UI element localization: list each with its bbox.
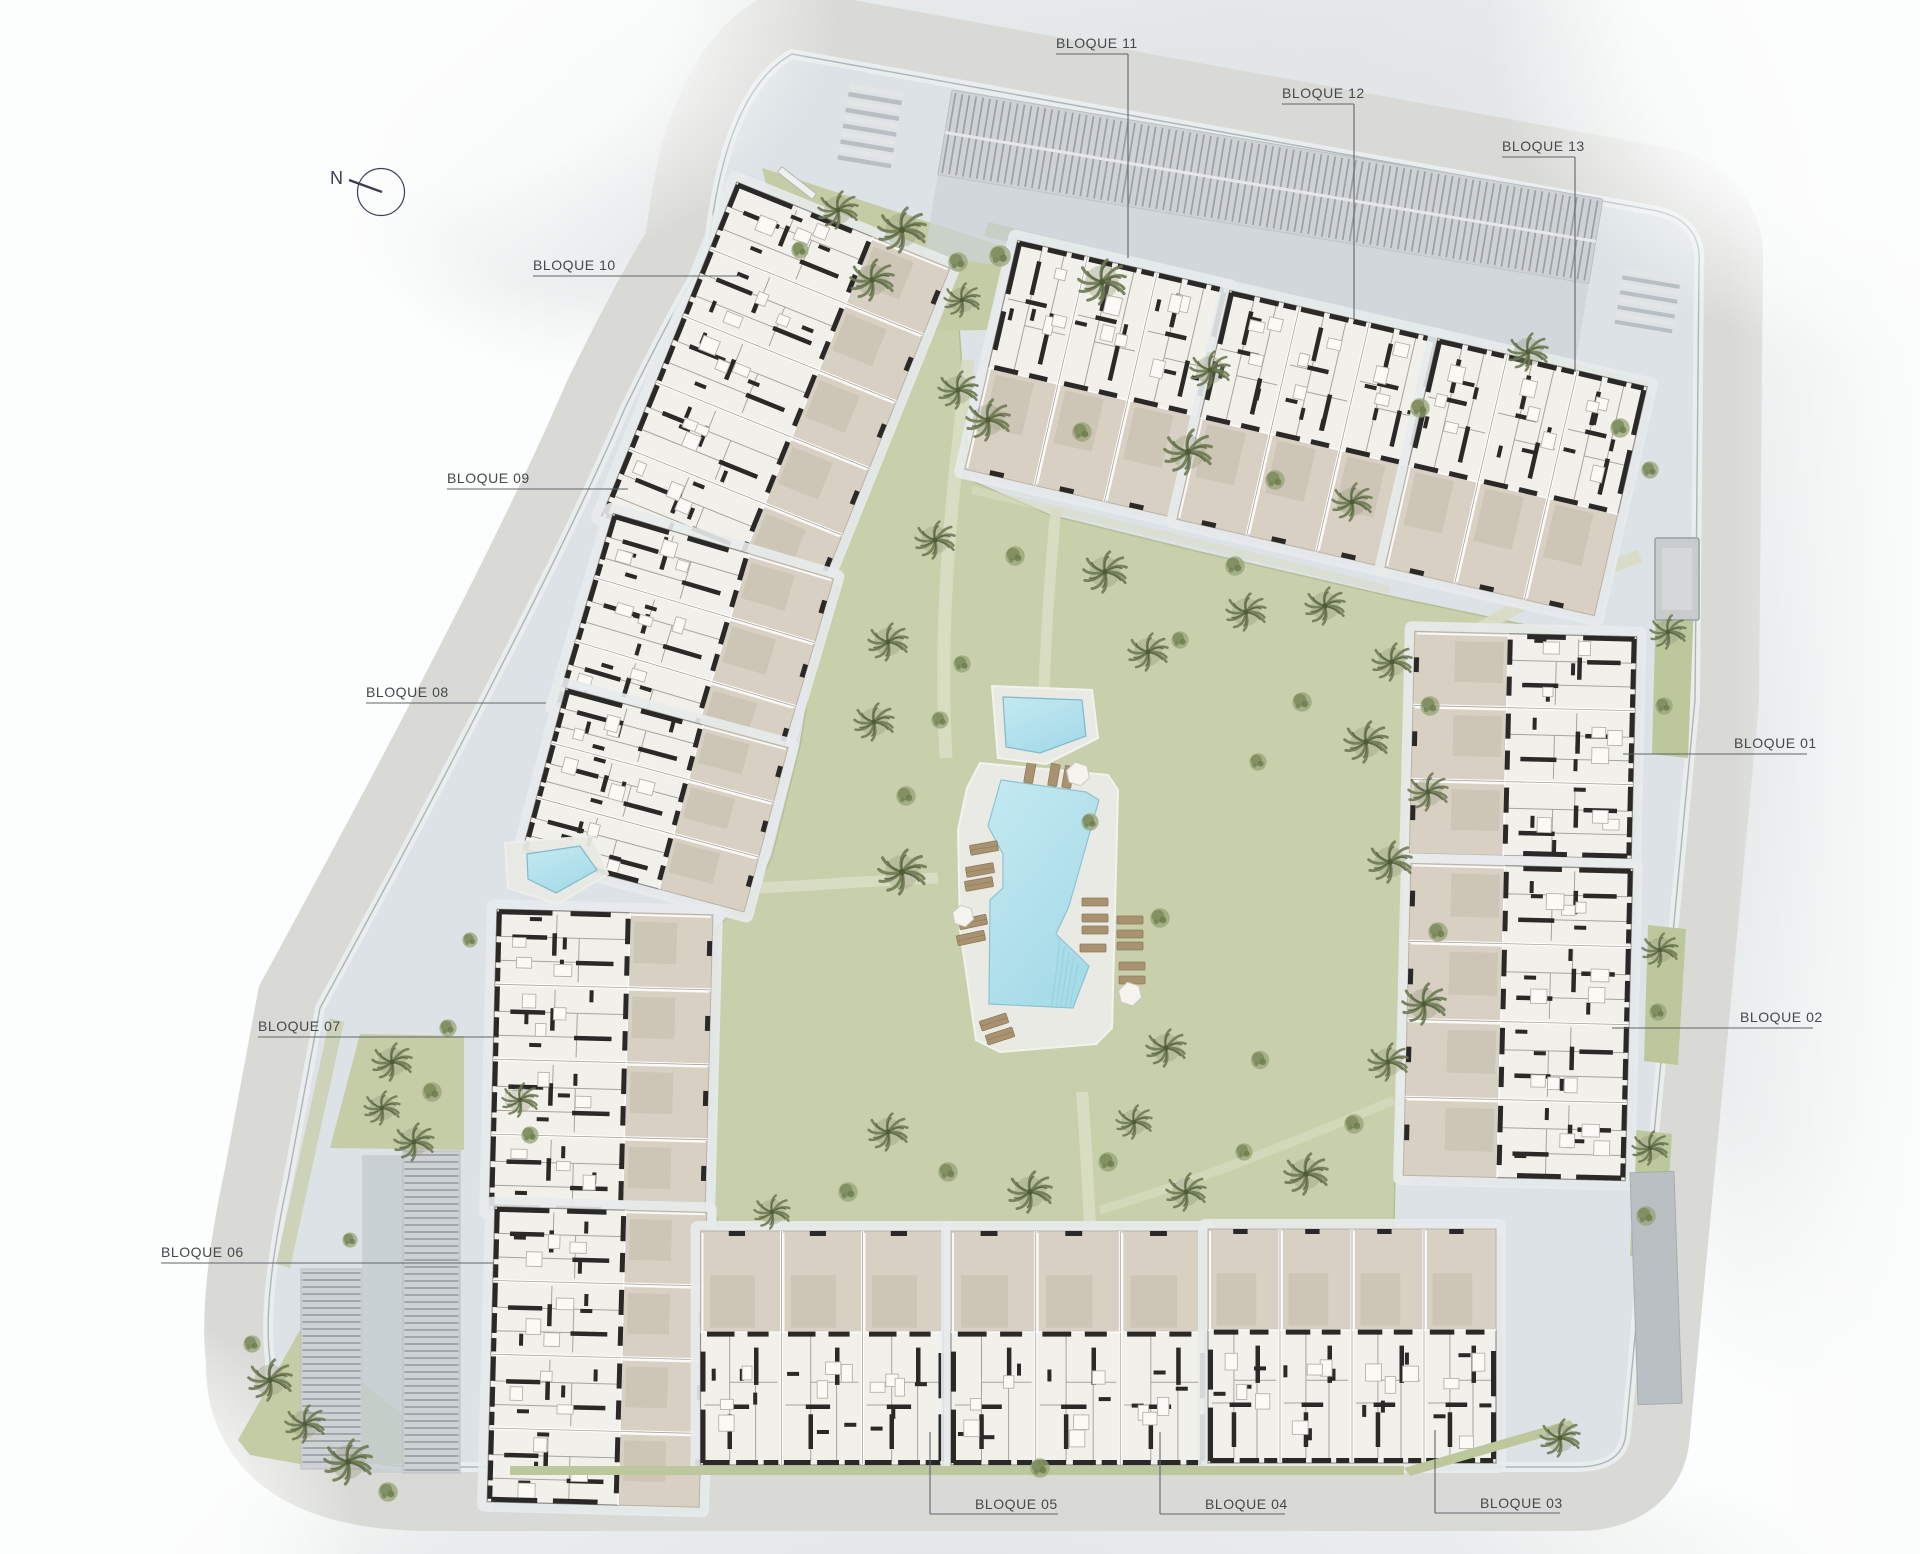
svg-text:N: N (330, 168, 343, 188)
svg-text:BLOQUE 06: BLOQUE 06 (161, 1244, 244, 1260)
svg-text:BLOQUE 11: BLOQUE 11 (1056, 35, 1138, 51)
svg-text:BLOQUE 08: BLOQUE 08 (366, 684, 449, 700)
svg-text:BLOQUE 13: BLOQUE 13 (1502, 138, 1585, 154)
svg-text:BLOQUE 01: BLOQUE 01 (1734, 735, 1817, 751)
svg-text:BLOQUE 12: BLOQUE 12 (1282, 85, 1365, 101)
svg-text:BLOQUE 04: BLOQUE 04 (1205, 1496, 1288, 1512)
svg-text:BLOQUE 02: BLOQUE 02 (1740, 1009, 1823, 1025)
svg-text:BLOQUE 07: BLOQUE 07 (258, 1018, 341, 1034)
svg-text:BLOQUE 09: BLOQUE 09 (447, 470, 530, 486)
svg-text:BLOQUE 05: BLOQUE 05 (975, 1496, 1058, 1512)
svg-text:BLOQUE 10: BLOQUE 10 (533, 257, 616, 273)
svg-text:BLOQUE 03: BLOQUE 03 (1480, 1495, 1563, 1511)
